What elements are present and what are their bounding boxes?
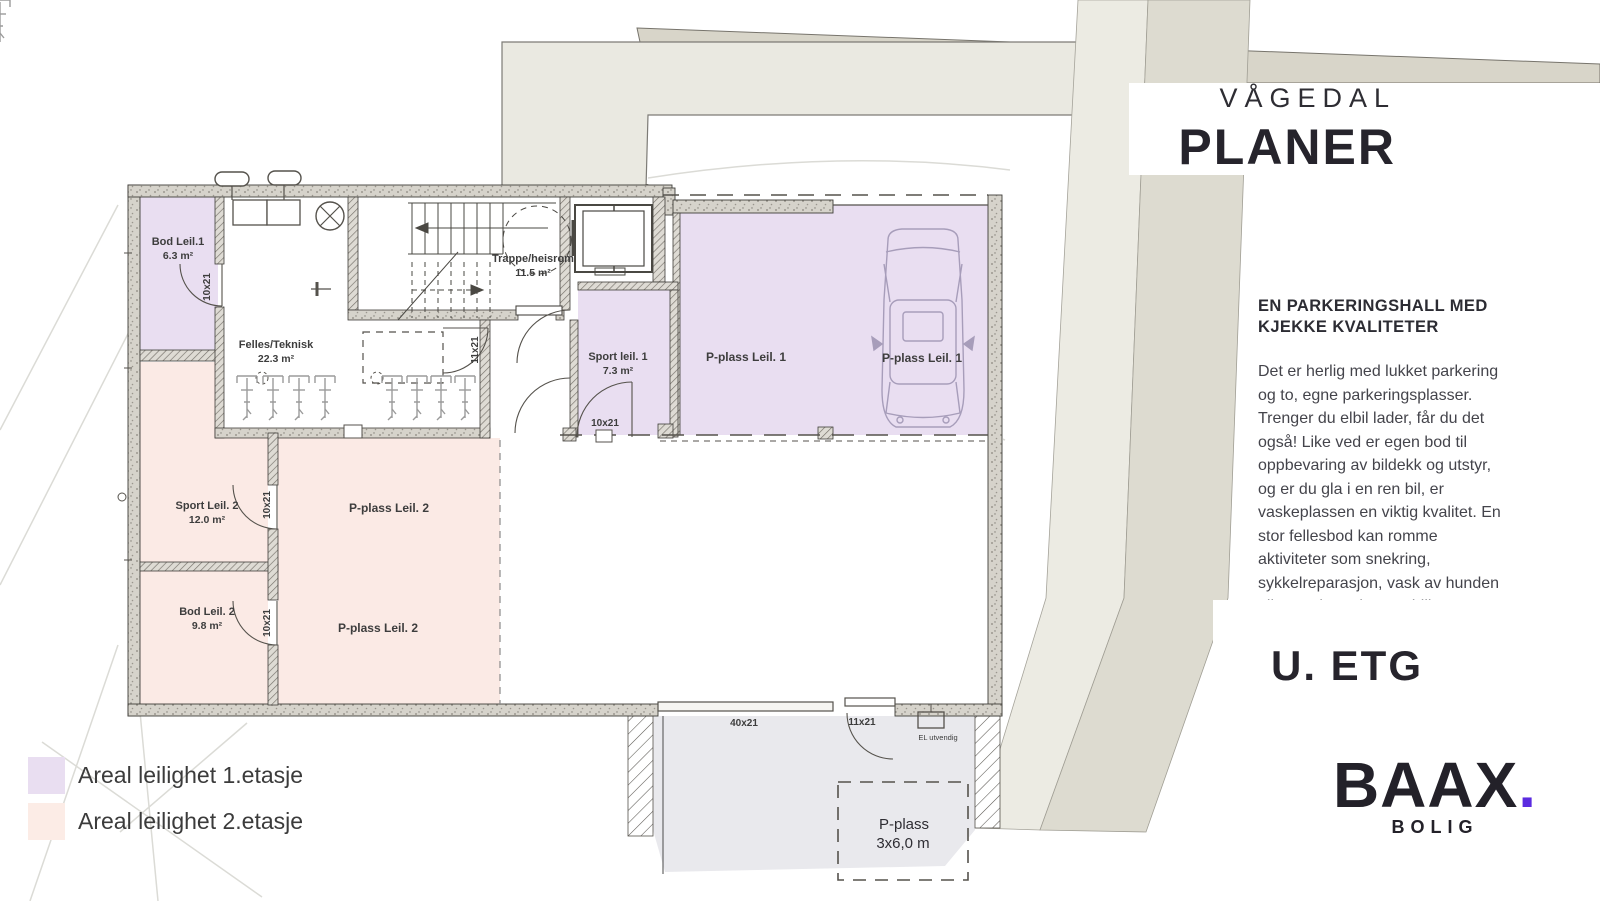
- legend-label-floor2: Areal leilighet 2.etasje: [78, 808, 303, 835]
- room-trappe-name: Trappe/heisrom: [492, 253, 574, 265]
- legend: Areal leilighet 1.etasje Areal leilighet…: [28, 757, 368, 849]
- room-bod1-area: 6.3 m²: [163, 250, 194, 262]
- door-bod1-size: 10x21: [202, 273, 213, 301]
- room-bod1-name: Bod Leil.1: [152, 236, 205, 248]
- door-bod2-size: 10x21: [262, 609, 273, 637]
- room-bod2-area: 9.8 m²: [192, 620, 223, 632]
- info-body-line: oppbevaring av bildekk og utstyr,: [1258, 454, 1536, 478]
- plan-sheet: Bod Leil.1 6.3 m² Felles/Teknisk 22.3 m²…: [0, 0, 1600, 901]
- door-sport1-size: 10x21: [591, 418, 619, 429]
- outdoor-pplass-line2: 3x6,0 m: [876, 835, 929, 852]
- area-pplass1: [673, 205, 988, 435]
- info-body-line: også! Like ved er egen bod til: [1258, 431, 1536, 455]
- room-sport2-name: Sport Leil. 2: [176, 500, 239, 512]
- room-felles-name: Felles/Teknisk: [239, 339, 314, 351]
- legend-swatch-floor2: [28, 803, 65, 840]
- room-bod2-name: Bod Leil. 2: [179, 606, 235, 618]
- door-corridor-size: 11x21: [470, 336, 481, 364]
- floor-level-box: U. ETG: [1213, 600, 1600, 732]
- info-body-line: stor fellesbod kan romme: [1258, 525, 1536, 549]
- project-name: VÅGEDAL: [1219, 83, 1396, 114]
- legend-label-floor1: Areal leilighet 1.etasje: [78, 762, 303, 789]
- info-body-line: og er du gla i en ren bil, er: [1258, 478, 1536, 502]
- el-utvendig-label: EL utvendig: [918, 733, 957, 742]
- room-felles-area: 22.3 m²: [258, 353, 295, 365]
- room-sport1-area: 7.3 m²: [603, 365, 634, 377]
- info-heading-line2: KJEKKE KVALITETER: [1258, 317, 1536, 338]
- legend-swatch-floor1: [28, 757, 65, 794]
- area-pplass2: [278, 438, 500, 705]
- floor-level-label: U. ETG: [1271, 642, 1423, 690]
- pplass-leil1-b: P-plass Leil. 1: [882, 351, 962, 365]
- door-garage-size: 40x21: [730, 718, 758, 729]
- info-heading: EN PARKERINGSHALL MED KJEKKE KVALITETER: [1258, 296, 1536, 338]
- info-body-line: og to, egne parkeringsplasser.: [1258, 384, 1536, 408]
- door-entry-size: 11x21: [848, 717, 876, 728]
- info-body-line: aktiviteter som snekring,: [1258, 548, 1536, 572]
- info-panel: EN PARKERINGSHALL MED KJEKKE KVALITETER …: [1258, 296, 1536, 619]
- legend-item-floor1: Areal leilighet 1.etasje: [28, 757, 368, 794]
- area-bod2: [140, 570, 268, 705]
- legend-item-floor2: Areal leilighet 2.etasje: [28, 803, 368, 840]
- room-sport2-area: 12.0 m²: [189, 514, 226, 526]
- logo-wordmark: BAAX.: [1300, 755, 1570, 815]
- info-body-line: vaskeplassen en viktig kvalitet. En: [1258, 501, 1536, 525]
- door-sport2-size: 10x21: [262, 491, 273, 519]
- logo-brand-text: BAAX: [1333, 749, 1518, 821]
- info-body-line: Det er herlig med lukket parkering: [1258, 360, 1536, 384]
- room-sport1-name: Sport leil. 1: [588, 351, 647, 363]
- page-title: PLANER: [1178, 118, 1396, 176]
- info-body-line: Trenger du elbil lader, får du det: [1258, 407, 1536, 431]
- pplass-leil2-a: P-plass Leil. 2: [349, 501, 429, 515]
- outdoor-pplass-line1: P-plass: [879, 816, 929, 833]
- stair-door-threshold: [516, 306, 562, 315]
- company-logo: BAAX. BOLIG: [1300, 755, 1570, 838]
- sheet-header: VÅGEDAL PLANER: [1129, 83, 1600, 175]
- room-trappe-area: 11.5 m²: [515, 267, 551, 279]
- pplass-leil2-b: P-plass Leil. 2: [338, 621, 418, 635]
- info-body-line: sykkelreparasjon, vask av hunden: [1258, 572, 1536, 596]
- site-area-upper: [502, 42, 1158, 188]
- pplass-leil1-a: P-plass Leil. 1: [706, 350, 786, 364]
- logo-accent-dot: .: [1518, 749, 1537, 821]
- info-body: Det er herlig med lukket parkering og to…: [1258, 360, 1536, 619]
- info-heading-line1: EN PARKERINGSHALL MED: [1258, 296, 1536, 317]
